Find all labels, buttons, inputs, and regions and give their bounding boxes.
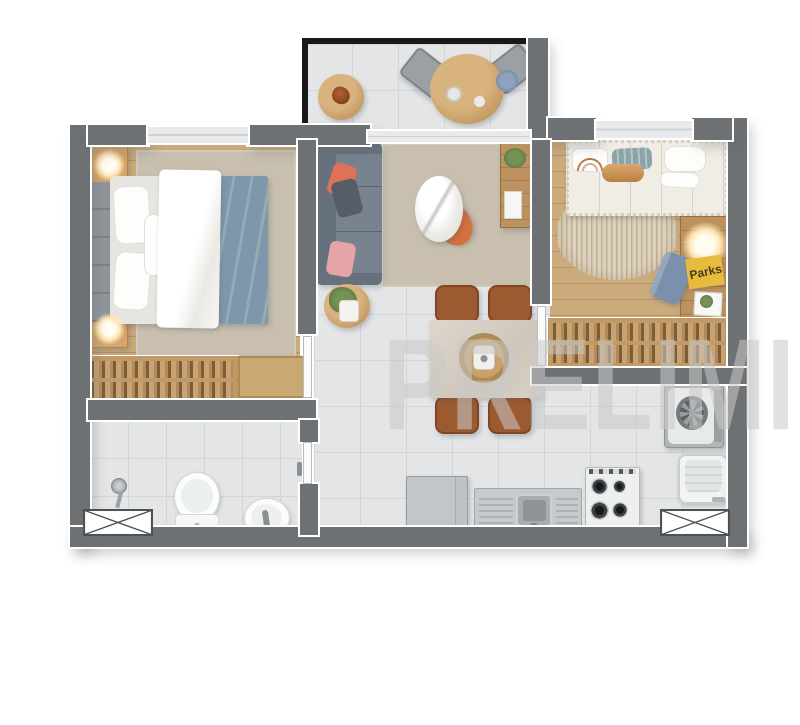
bedroom1-window xyxy=(148,127,248,143)
dining-chair-3 xyxy=(435,396,479,434)
stove-knobs xyxy=(589,469,636,474)
counter-grooves-left xyxy=(479,498,513,524)
dining-chair-1 xyxy=(435,285,479,323)
toilet-bowl-inner xyxy=(181,479,213,513)
dining-cup xyxy=(473,345,495,370)
sink-basin xyxy=(523,500,546,521)
wall-bedroom1-top-left xyxy=(88,125,148,145)
stove-burner-1 xyxy=(591,478,608,495)
sideboard-box xyxy=(504,191,522,219)
wall-bottom-outer xyxy=(70,527,747,547)
stove-burner-2 xyxy=(613,480,626,493)
wall-left-outer xyxy=(70,125,90,547)
coffee-table xyxy=(415,176,463,242)
bed1-headboard xyxy=(88,182,112,322)
wall-bedroom2-living-divider xyxy=(532,140,550,304)
laundry-tub-basin xyxy=(685,460,722,492)
wall-bedroom2-top-left xyxy=(548,118,596,140)
refrigerator xyxy=(406,476,468,532)
wall-bedroom1-living-divider xyxy=(298,140,316,334)
bedroom1-wardrobe-counter xyxy=(238,356,306,398)
nightstand-top-lamp xyxy=(93,149,125,181)
side-table-pot xyxy=(339,300,359,322)
laundry-x-window xyxy=(660,509,730,536)
bedroom1-door xyxy=(303,336,312,398)
bathroom-door-handle xyxy=(297,462,302,476)
dining-chair-4 xyxy=(488,396,532,434)
balcony-dining-table xyxy=(430,54,504,124)
wall-bedroom1-bottom xyxy=(88,400,316,420)
bedroom2-window xyxy=(596,121,692,138)
stove xyxy=(585,467,640,533)
desk-plant xyxy=(700,295,713,308)
bathroom-door xyxy=(303,442,312,484)
bedroom2-wardrobe xyxy=(548,318,730,368)
wall-bathroom-right-upper xyxy=(300,420,318,442)
table-cup xyxy=(446,86,462,102)
bathroom-x-window xyxy=(83,509,153,536)
balcony-sliding-door xyxy=(368,131,530,142)
washer-drum xyxy=(676,396,708,430)
shower-head xyxy=(111,478,127,494)
table-bowl xyxy=(496,70,518,92)
nightstand-bottom-lamp xyxy=(93,313,125,345)
bed2-blanket-roll xyxy=(602,164,644,182)
stove-burner-4 xyxy=(612,502,628,518)
floor-plan: Parks PRELIMIN xyxy=(0,0,800,725)
wall-right-outer xyxy=(728,118,747,547)
wall-bedroom2-top-right xyxy=(692,118,732,140)
dining-chair-2 xyxy=(488,285,532,323)
bedroom2-door xyxy=(537,306,546,366)
parks-sign: Parks xyxy=(685,255,725,290)
balcony-wall-top xyxy=(302,38,548,44)
sideboard-plant xyxy=(504,148,526,168)
wall-bathroom-right-lower xyxy=(300,484,318,535)
bed1-white-duvet xyxy=(157,169,222,328)
bed2-pillow-white-2 xyxy=(660,171,701,189)
bed2-pillow-white-1 xyxy=(664,146,706,172)
table-plate xyxy=(474,96,485,107)
wall-bedroom2-bottom xyxy=(532,368,747,384)
wall-balcony-column xyxy=(528,38,548,140)
bedroom1-wardrobe xyxy=(86,356,238,404)
washer-panel xyxy=(714,390,722,442)
stove-burner-3 xyxy=(590,501,609,520)
parks-sign-label: Parks xyxy=(685,254,725,283)
counter-grooves-right xyxy=(556,498,578,524)
laundry-tub-tap xyxy=(712,497,725,502)
